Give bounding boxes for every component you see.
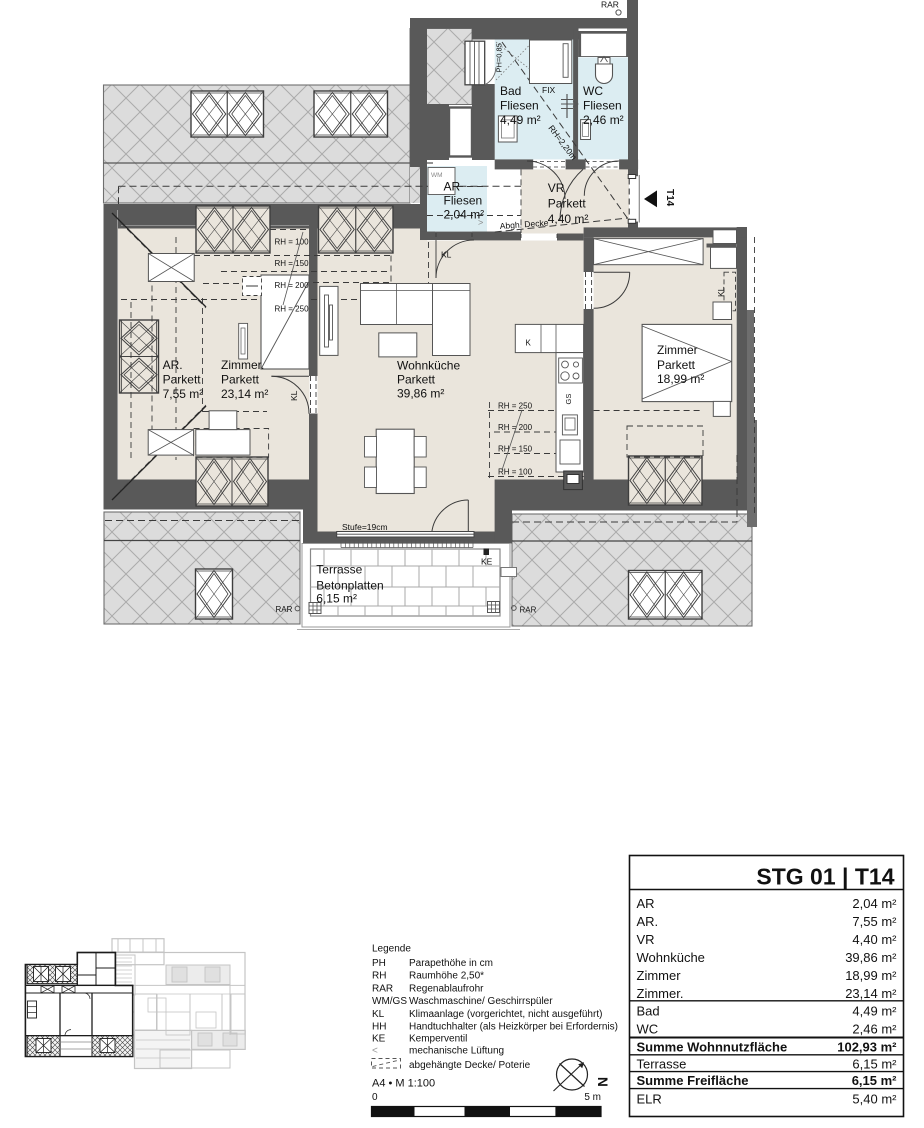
svg-text:7,55 m²: 7,55 m² xyxy=(852,914,897,929)
svg-text:Summe Wohnnutzfläche: Summe Wohnnutzfläche xyxy=(637,1040,788,1055)
svg-text:>: > xyxy=(478,218,483,228)
svg-text:5 m: 5 m xyxy=(584,1092,601,1103)
svg-text:RH = 200: RH = 200 xyxy=(275,281,310,290)
svg-text:Klimaanlage (vorgerichtet, nic: Klimaanlage (vorgerichtet, nicht ausgefü… xyxy=(409,1009,602,1020)
svg-text:18,99 m²: 18,99 m² xyxy=(845,968,897,983)
svg-text:AR: AR xyxy=(637,896,655,911)
svg-text:WM: WM xyxy=(431,172,443,179)
svg-text:abgehängte Decke/ Poterie: abgehängte Decke/ Poterie xyxy=(409,1060,531,1071)
svg-text:Fliesen: Fliesen xyxy=(583,99,622,113)
svg-text:Regenablaufrohr: Regenablaufrohr xyxy=(409,983,484,994)
svg-text:2,04 m²: 2,04 m² xyxy=(852,896,897,911)
svg-text:6,15 m²: 6,15 m² xyxy=(316,592,357,606)
svg-text:ELR: ELR xyxy=(637,1091,662,1106)
svg-text:4,40 m²: 4,40 m² xyxy=(548,212,589,226)
svg-text:Bad: Bad xyxy=(637,1004,660,1019)
svg-text:Parkett: Parkett xyxy=(397,373,436,387)
svg-text:Parkett: Parkett xyxy=(221,373,260,387)
svg-text:T14: T14 xyxy=(664,189,675,207)
svg-text:WC: WC xyxy=(583,84,603,98)
svg-text:WM/GS: WM/GS xyxy=(372,996,407,1007)
svg-text:Parkett: Parkett xyxy=(657,358,696,372)
svg-text:Legende: Legende xyxy=(372,944,411,955)
svg-text:RAR: RAR xyxy=(276,605,293,614)
svg-text:RAR: RAR xyxy=(372,983,393,994)
svg-text:mechanische Lüftung: mechanische Lüftung xyxy=(409,1046,504,1057)
svg-text:Stufe=19cm: Stufe=19cm xyxy=(342,522,388,532)
svg-text:Terrasse: Terrasse xyxy=(316,563,362,577)
svg-text:VR: VR xyxy=(548,181,565,195)
svg-text:7,55 m²: 7,55 m² xyxy=(163,387,204,401)
svg-text:RH = 250: RH = 250 xyxy=(498,402,533,411)
svg-text:0: 0 xyxy=(372,1092,378,1103)
svg-text:KL: KL xyxy=(716,286,726,297)
svg-text:PH: PH xyxy=(372,958,386,969)
svg-text:STG 01 | T14: STG 01 | T14 xyxy=(756,863,894,889)
svg-text:AR.: AR. xyxy=(637,914,659,929)
svg-text:Parapethöhe in cm: Parapethöhe in cm xyxy=(409,958,493,969)
svg-text:5,40 m²: 5,40 m² xyxy=(852,1091,897,1106)
svg-text:Zimmer.: Zimmer. xyxy=(637,986,684,1001)
svg-text:VR: VR xyxy=(637,932,655,947)
svg-text:Waschmaschine/ Geschirrspüler: Waschmaschine/ Geschirrspüler xyxy=(409,996,553,1007)
svg-text:FIX: FIX xyxy=(542,85,556,95)
svg-text:GS: GS xyxy=(564,394,573,405)
svg-text:6,15 m²: 6,15 m² xyxy=(852,1056,897,1071)
svg-text:102,93 m²: 102,93 m² xyxy=(837,1040,897,1055)
svg-text:23,14 m²: 23,14 m² xyxy=(221,387,268,401)
svg-text:KL: KL xyxy=(289,390,299,401)
svg-text:Handtuchhalter (als Heizkörper: Handtuchhalter (als Heizkörper bei Erfor… xyxy=(409,1022,618,1033)
svg-text:Fliesen: Fliesen xyxy=(444,194,483,208)
svg-text:RH: RH xyxy=(372,971,386,982)
svg-text:<: < xyxy=(372,1046,378,1057)
svg-text:2,46 m²: 2,46 m² xyxy=(852,1022,897,1037)
svg-text:PH=0,85: PH=0,85 xyxy=(495,43,504,72)
svg-text:RAR: RAR xyxy=(520,606,537,615)
svg-text:KL: KL xyxy=(372,1009,385,1020)
svg-text:Summe Freifläche: Summe Freifläche xyxy=(637,1073,749,1088)
svg-text:AR.: AR. xyxy=(163,358,183,372)
svg-text:Fliesen: Fliesen xyxy=(500,99,539,113)
svg-text:18,99 m²: 18,99 m² xyxy=(657,372,704,386)
svg-text:AR: AR xyxy=(444,180,461,194)
svg-text:Raumhöhe 2,50*: Raumhöhe 2,50* xyxy=(409,971,484,982)
svg-text:Betonplatten: Betonplatten xyxy=(316,579,383,593)
svg-text:6,15 m²: 6,15 m² xyxy=(852,1073,897,1088)
svg-text:RAR: RAR xyxy=(601,0,619,10)
svg-text:Wohnküche: Wohnküche xyxy=(397,358,460,372)
svg-text:RH = 250: RH = 250 xyxy=(275,305,310,314)
svg-text:Bad: Bad xyxy=(500,84,521,98)
svg-text:N: N xyxy=(595,1077,610,1087)
svg-text:Wohnküche: Wohnküche xyxy=(637,950,705,965)
svg-text:RH = 150: RH = 150 xyxy=(275,259,310,268)
svg-text:KL: KL xyxy=(441,250,452,260)
svg-text:WC: WC xyxy=(637,1022,659,1037)
svg-text:A4 • M 1:100: A4 • M 1:100 xyxy=(372,1077,435,1089)
svg-text:KE: KE xyxy=(372,1034,386,1045)
svg-text:Kemperventil: Kemperventil xyxy=(409,1034,467,1045)
svg-text:RH = 150: RH = 150 xyxy=(498,445,533,454)
svg-text:23,14 m²: 23,14 m² xyxy=(845,986,897,1001)
svg-text:Zimmer: Zimmer xyxy=(657,343,698,357)
svg-text:Terrasse: Terrasse xyxy=(637,1056,687,1071)
svg-text:Parkett: Parkett xyxy=(163,373,202,387)
svg-text:4,49 m²: 4,49 m² xyxy=(852,1004,897,1019)
svg-text:KE: KE xyxy=(481,557,493,567)
svg-text:39,86 m²: 39,86 m² xyxy=(845,950,897,965)
svg-text:Zimmer: Zimmer xyxy=(637,968,682,983)
svg-text:RH = 100: RH = 100 xyxy=(498,468,533,477)
svg-text:39,86 m²: 39,86 m² xyxy=(397,387,444,401)
svg-text:HH: HH xyxy=(372,1022,386,1033)
svg-text:RH = 100: RH = 100 xyxy=(275,238,310,247)
svg-text:Zimmer.: Zimmer. xyxy=(221,358,264,372)
svg-text:4,49 m²: 4,49 m² xyxy=(500,113,541,127)
svg-text:Parkett: Parkett xyxy=(548,197,587,211)
svg-text:K: K xyxy=(526,339,532,348)
svg-text:4,40 m²: 4,40 m² xyxy=(852,932,897,947)
svg-text:2,46 m²: 2,46 m² xyxy=(583,113,624,127)
